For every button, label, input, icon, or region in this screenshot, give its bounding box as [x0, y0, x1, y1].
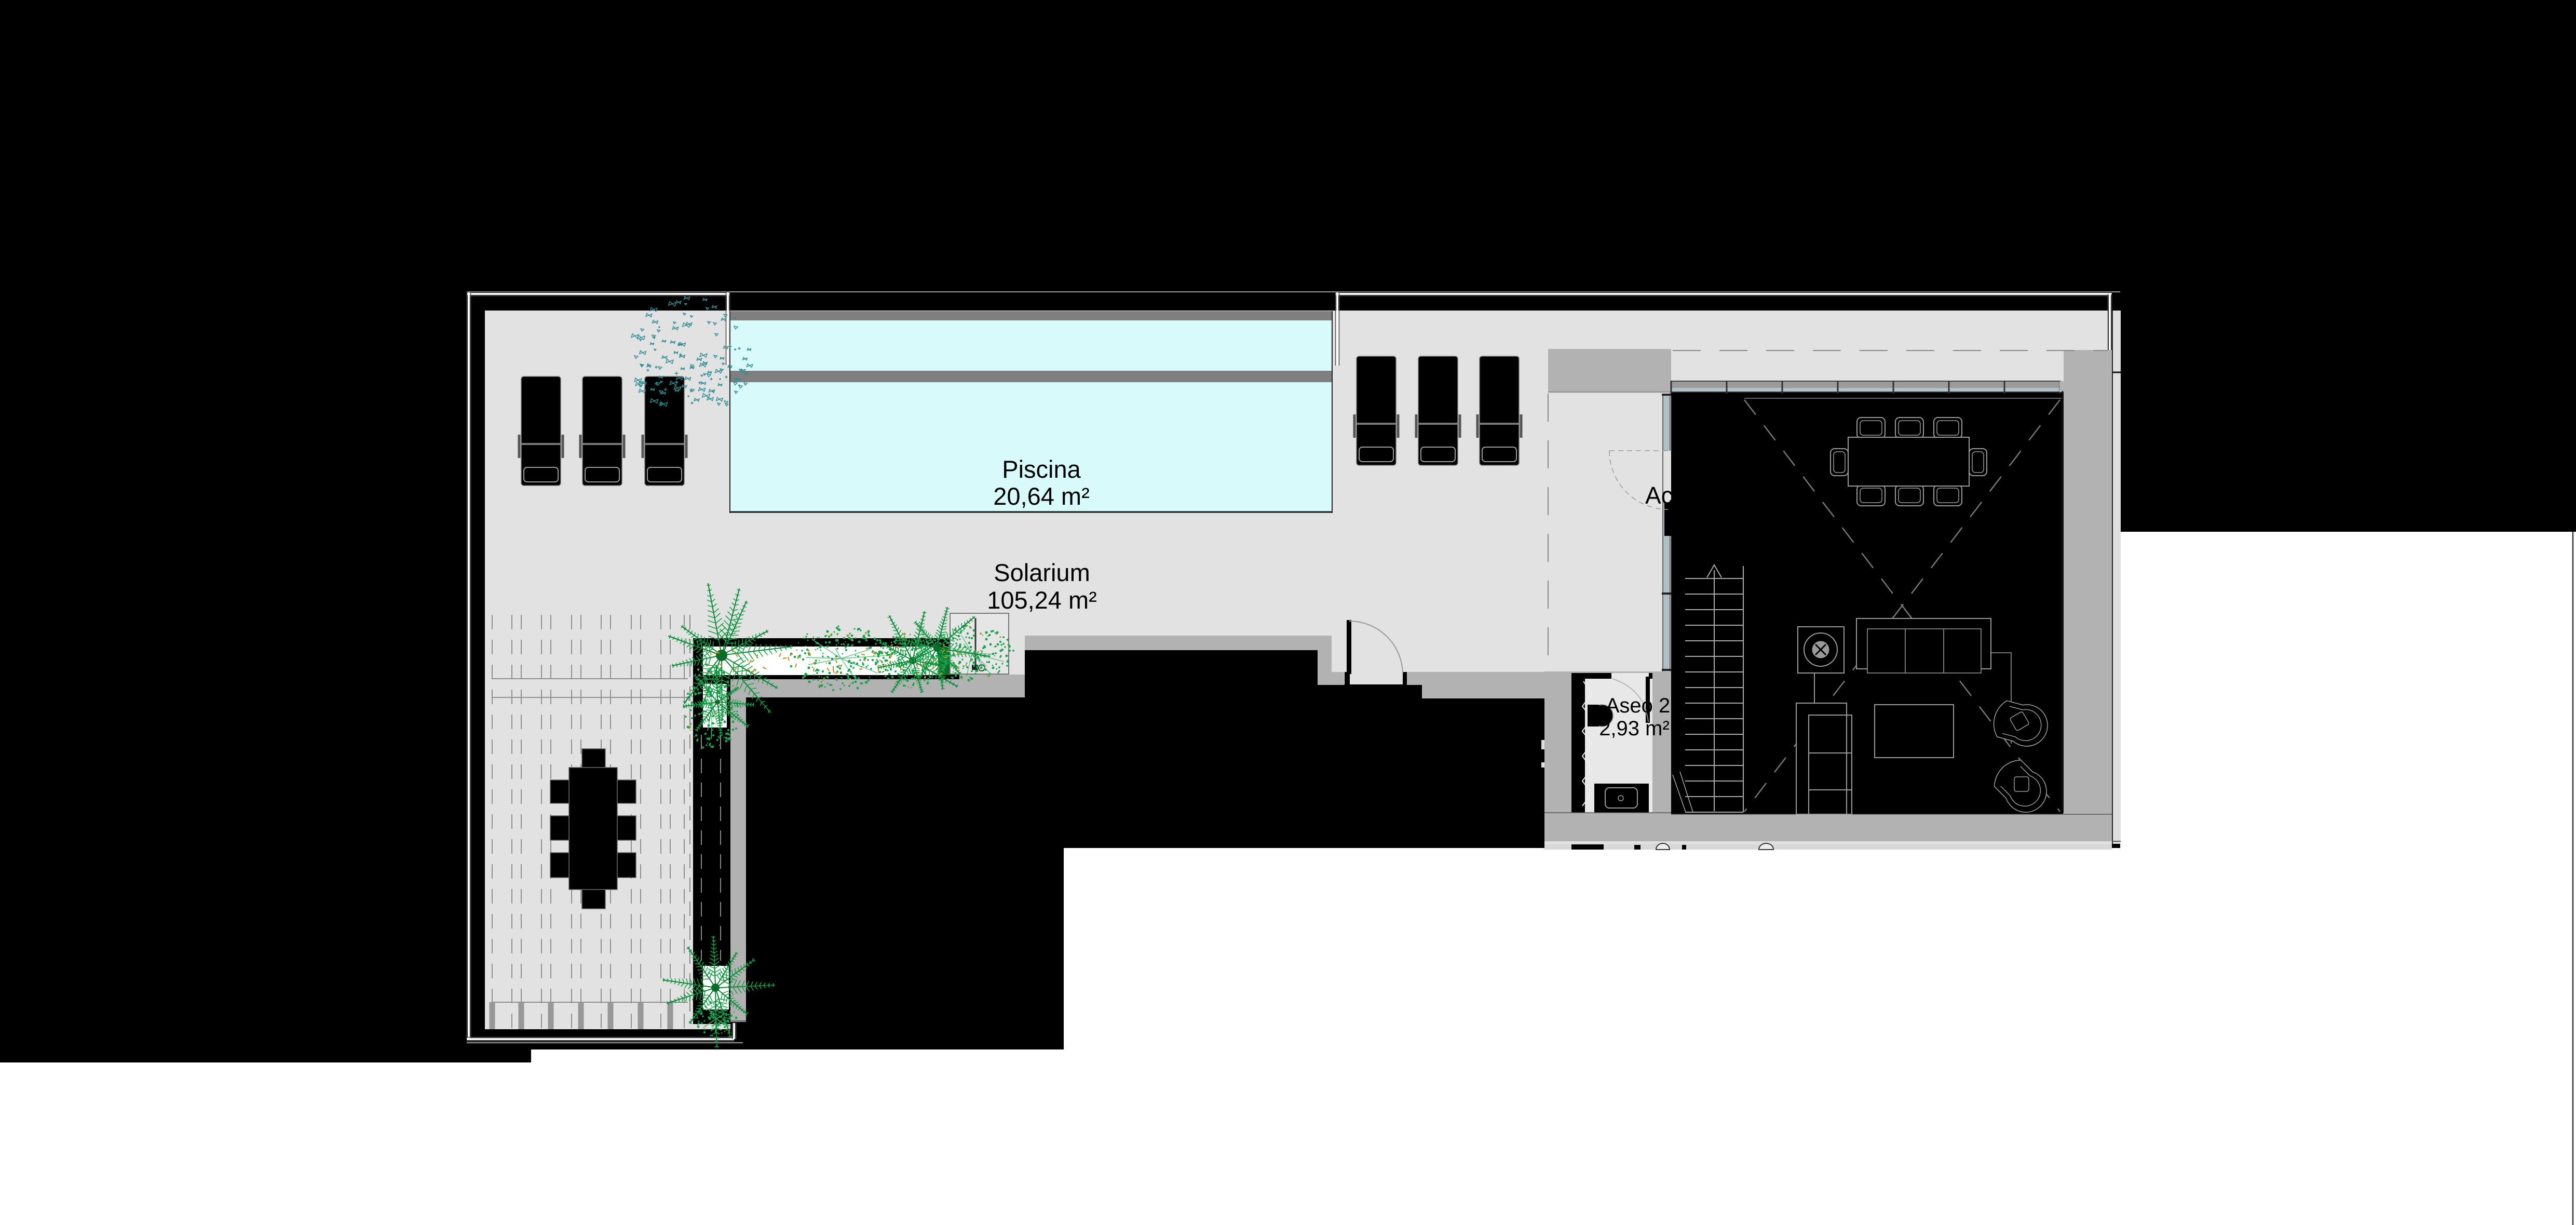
svg-text:2,93 m²: 2,93 m²	[1599, 717, 1670, 740]
svg-text:20,64 m²: 20,64 m²	[993, 482, 1089, 510]
svg-text:Piscina: Piscina	[1002, 455, 1081, 483]
svg-text:105,24 m²: 105,24 m²	[987, 586, 1097, 614]
svg-text:Solarium: Solarium	[994, 559, 1090, 586]
svg-text:Aseo 2: Aseo 2	[1606, 694, 1671, 717]
svg-text:Ac: Ac	[1645, 482, 1673, 509]
